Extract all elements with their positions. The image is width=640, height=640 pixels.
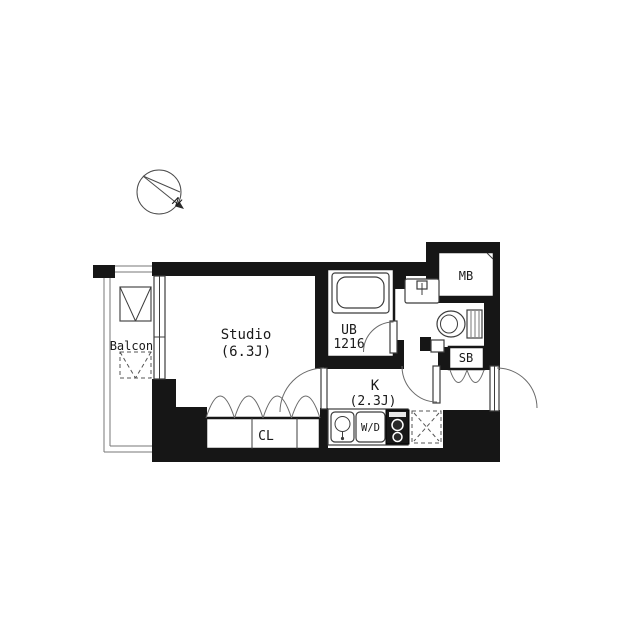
kitchen-label: K [371,378,380,394]
toilet-control-box [431,340,444,352]
closet-label: CL [258,429,274,444]
shoe-box-folding-door [467,370,484,383]
balcony-window [154,276,165,379]
washer-dryer-label: W/D [361,422,380,434]
bath-door-leaf [390,321,397,353]
shoe-box-label: SB [459,351,473,365]
bathtub-inner [337,277,384,308]
floor-plan-page: N Balcony [0,0,640,640]
floor-plan: N Balcony [0,0,640,640]
kitchen-size: (2.3J) [350,394,397,409]
balcony-label: Balcony [110,339,161,353]
studio-label: Studio [221,327,272,343]
closet: CL [206,396,320,449]
doors [280,366,537,412]
shoe-box: SB [449,347,484,383]
entrance-door-swing [497,368,537,408]
wall-segment [318,357,402,369]
ac-pad [120,287,151,321]
unit-bath-size: 1216 [333,337,364,352]
hall-door-leaf [433,366,440,403]
wall-segment [93,265,115,278]
meter-box-label: MB [459,269,473,283]
compass: N [137,170,184,214]
closet-folding-door [206,396,235,418]
toilet [431,310,482,352]
wall-segment [420,337,431,351]
ac-pad-dashed-mark [120,352,136,378]
wall-segment [484,303,500,348]
ac-pad-dashed-mark [136,352,152,378]
stove-burner [393,433,402,442]
hall-door-swing [402,366,437,402]
studio-size: (6.3J) [221,344,272,360]
closet-folding-door [292,396,321,418]
meter-box: MB [438,252,494,297]
sink-drain-dot [341,437,344,440]
wall-segment [315,262,327,369]
wall-segment [443,410,500,462]
studio-door-leaf [321,368,327,409]
compass-chord [143,176,180,192]
stove-burner [392,420,403,431]
unit-bath-label: UB [341,323,357,338]
kitchen-counter: W/D [328,409,441,445]
wash-basin [405,279,439,303]
ac-pad-dashed [120,352,151,378]
closet-folding-door [263,396,292,418]
stove-grill [389,412,406,417]
closet-folding-door [235,396,264,418]
wall-segment [152,379,176,462]
shoe-box-folding-door [450,370,467,383]
unit-bath: UB 1216 [327,269,397,357]
